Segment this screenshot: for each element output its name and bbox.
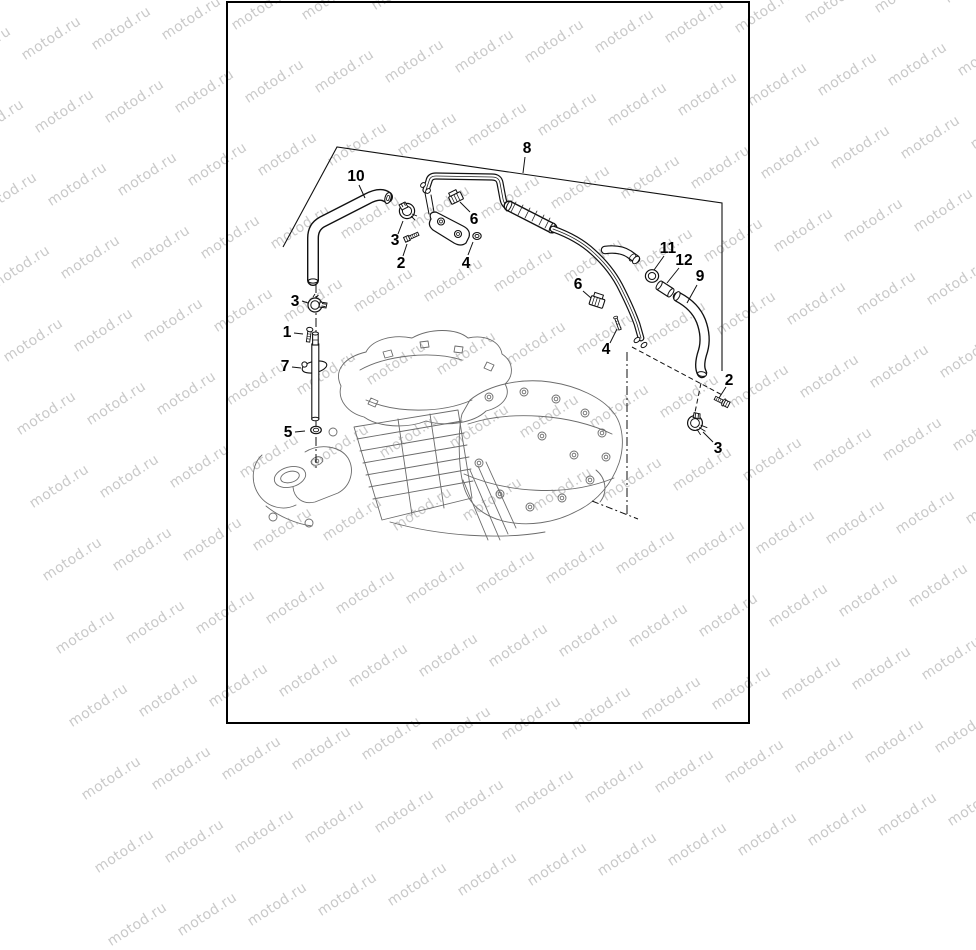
hose-clamp-3-left — [308, 294, 327, 312]
callout-4b: 4 — [602, 341, 611, 358]
watermark-text: motod.ru — [302, 797, 367, 847]
callout-6b: 6 — [574, 276, 583, 293]
pipe-clip-6-lower — [589, 292, 606, 309]
watermark-text: motod.ru — [149, 744, 214, 794]
callout-12: 12 — [675, 252, 692, 269]
hose-clamp-3-lower-right — [686, 412, 710, 436]
callout-9: 9 — [696, 268, 705, 285]
watermark-text: motod.ru — [512, 767, 577, 817]
callout-3c: 3 — [291, 293, 300, 310]
callout-10: 10 — [347, 168, 364, 185]
watermark-text: motod.ru — [875, 790, 940, 840]
watermark-text: motod.ru — [175, 890, 240, 940]
watermark-text: motod.ru — [162, 817, 227, 867]
assembly-axis-lines — [316, 284, 724, 519]
callout-3b: 3 — [714, 440, 723, 457]
callout-6a: 6 — [470, 211, 479, 228]
page: { "watermark": { "text": "motod.ru", "co… — [0, 0, 976, 732]
bolt-2-upper — [404, 231, 420, 242]
spacer-12 — [655, 280, 675, 298]
watermark-text: motod.ru — [442, 777, 507, 827]
parts-diagram: 8 10 3 2 4 6 11 12 9 6 4 2 3 3 1 7 5 — [0, 0, 976, 732]
bolt-2-lower — [713, 395, 730, 409]
pin-4-lower — [613, 316, 622, 331]
engine-background-drawing — [253, 331, 622, 541]
callout-8: 8 — [523, 140, 532, 157]
watermark-text: motod.ru — [945, 780, 976, 830]
bolt-bosses — [475, 388, 610, 511]
washer-4-upper — [473, 233, 481, 240]
callout-4a: 4 — [462, 255, 471, 272]
watermark-text: motod.ru — [805, 800, 870, 850]
pipe-clip-6-upper — [447, 188, 464, 204]
watermark-text: motod.ru — [219, 734, 284, 784]
seal-ring-5 — [311, 426, 322, 433]
bolt-1 — [305, 327, 313, 342]
watermark-text: motod.ru — [665, 820, 730, 870]
watermark-text: motod.ru — [652, 747, 717, 797]
watermark-text: motod.ru — [232, 807, 297, 857]
watermark-text: motod.ru — [92, 827, 157, 877]
watermark-text: motod.ru — [595, 830, 660, 880]
watermark-text: motod.ru — [79, 754, 144, 804]
watermark-text: motod.ru — [245, 880, 310, 930]
watermark-text: motod.ru — [372, 787, 437, 837]
hose-clamp-3-upper — [399, 202, 417, 220]
watermark-text: motod.ru — [722, 737, 787, 787]
oil-tube-7 — [301, 332, 328, 421]
watermark-text: motod.ru — [455, 850, 520, 900]
watermark-text: motod.ru — [315, 870, 380, 920]
outlet-hose-9 — [673, 291, 707, 377]
callout-5: 5 — [284, 424, 293, 441]
callout-7: 7 — [281, 358, 290, 375]
breather-hose-10 — [308, 192, 392, 283]
grommet-11 — [645, 270, 658, 283]
callout-11: 11 — [660, 240, 677, 257]
watermark-text: motod.ru — [582, 757, 647, 807]
watermark-text: motod.ru — [385, 860, 450, 910]
watermark-text: motod.ru — [105, 900, 170, 950]
callout-2a: 2 — [397, 255, 406, 272]
callout-2b: 2 — [725, 372, 734, 389]
watermark-text: motod.ru — [792, 727, 857, 777]
watermark-text: motod.ru — [525, 840, 590, 890]
watermark-text: motod.ru — [735, 810, 800, 860]
callout-1: 1 — [283, 324, 292, 341]
callout-3a: 3 — [391, 232, 400, 249]
